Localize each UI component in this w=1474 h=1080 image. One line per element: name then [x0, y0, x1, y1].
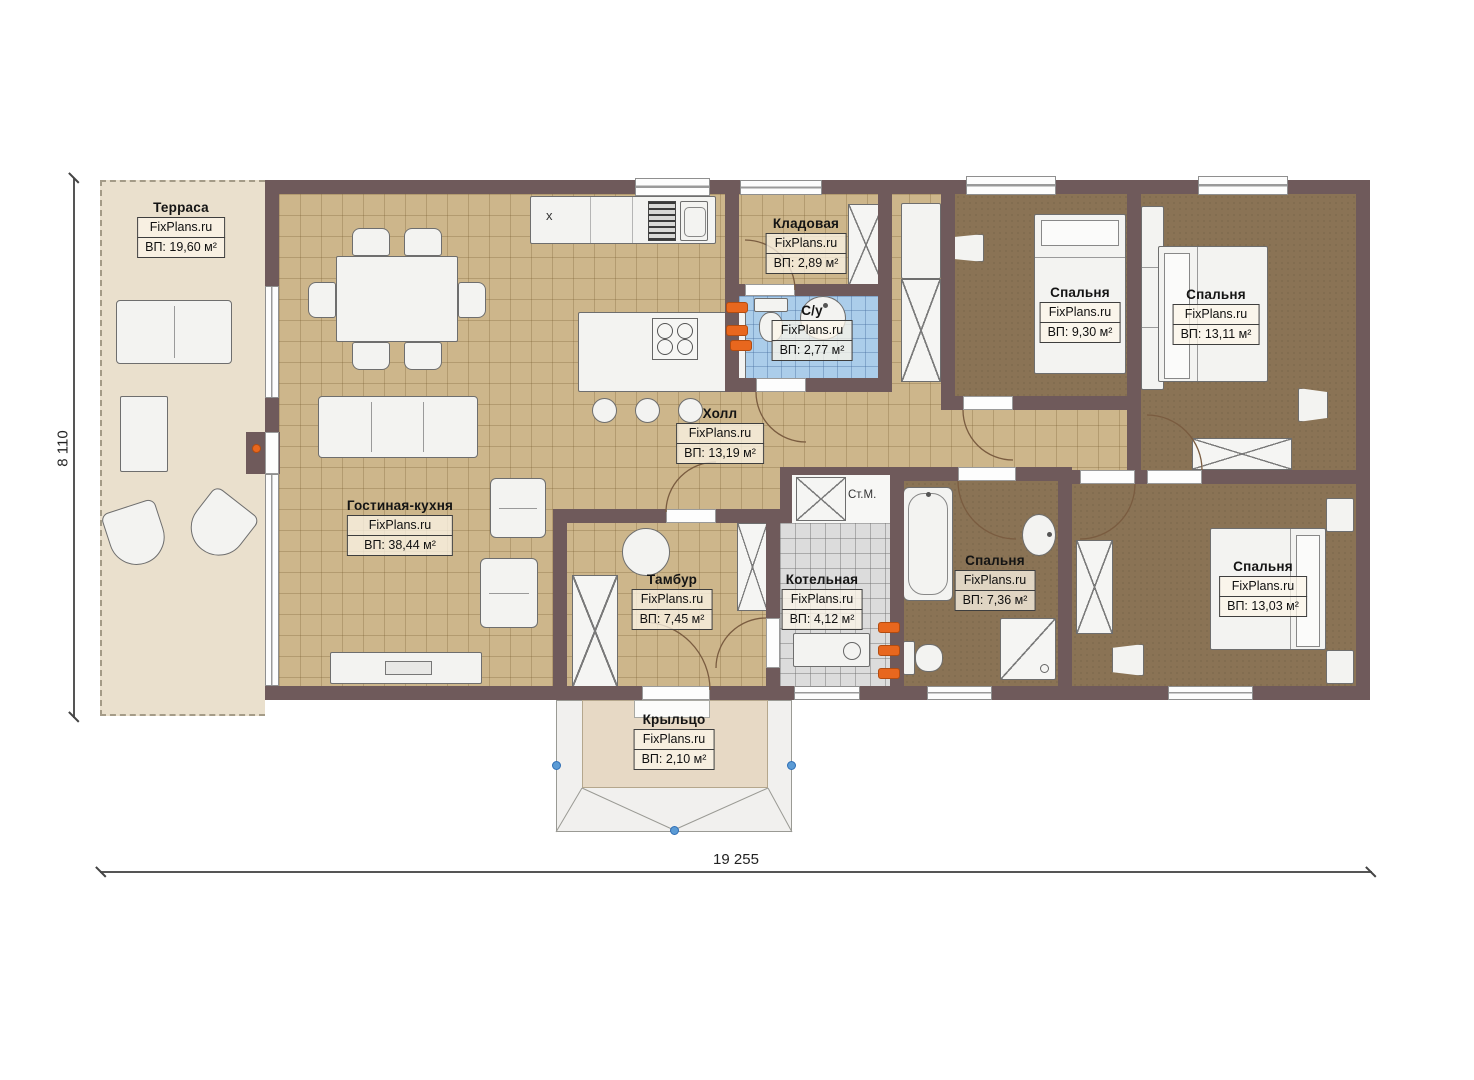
bedroom4-wardrobe: [1076, 540, 1113, 634]
kitchen-stove: [648, 201, 676, 241]
terrace-lounger: [120, 396, 168, 472]
room-watermark: FixPlans.ru: [347, 515, 453, 536]
wall-niche-top: [780, 467, 904, 475]
room-title: Спальня: [1040, 285, 1121, 300]
room-area: ВП: 7,45 м²: [632, 609, 713, 630]
bedroom3-window: [927, 686, 992, 700]
storage-door-leaf: [745, 284, 795, 296]
room-area: ВП: 2,77 м²: [772, 340, 853, 361]
bedroom1-window: [966, 176, 1056, 195]
terrace-glass-door-upper: [265, 286, 279, 398]
room-area: ВП: 19,60 м²: [137, 237, 225, 258]
label-living-kitchen: Гостиная-кухня FixPlans.ru ВП: 38,44 м²: [347, 498, 453, 556]
bed-pillow: [1041, 220, 1119, 246]
storage-window: [740, 180, 822, 195]
room-title: Терраса: [137, 200, 225, 215]
bedroom4-window: [1168, 686, 1253, 700]
bathtub: [903, 487, 953, 601]
wc-radiator-3: [730, 340, 752, 351]
boiler-door-leaf: [766, 618, 780, 668]
room-area: ВП: 4,12 м²: [782, 609, 863, 630]
room-title: Гостиная-кухня: [347, 498, 453, 513]
terrace-door-handle: [252, 444, 261, 453]
floor-plan: x Ст.М.: [0, 0, 1474, 1080]
room-title: Спальня: [955, 553, 1036, 568]
dim-height-label: 8 110: [55, 414, 72, 484]
island-cooktop: [652, 318, 698, 360]
bath-toilet-bowl: [915, 644, 943, 672]
room-area: ВП: 38,44 м²: [347, 535, 453, 556]
room-title: С/у: [772, 303, 853, 318]
label-boiler-room: Котельная FixPlans.ru ВП: 4,12 м²: [782, 572, 863, 630]
washing-machine: [796, 477, 846, 521]
label-hall: Холл FixPlans.ru ВП: 13,19 м²: [676, 406, 764, 464]
label-bedroom-2: Спальня FixPlans.ru ВП: 13,11 м²: [1173, 287, 1260, 345]
boiler-window: [794, 686, 860, 700]
washing-machine-label: Ст.М.: [848, 489, 876, 501]
bedroom4-nightstand-top: [1326, 498, 1354, 532]
dim-line-height: [73, 178, 75, 718]
dining-chair-5: [308, 282, 336, 318]
room-area: ВП: 2,89 м²: [766, 253, 847, 274]
wall-bedroom1-bedroom2: [1127, 194, 1141, 484]
room-watermark: FixPlans.ru: [137, 217, 225, 238]
room-area: ВП: 2,10 м²: [634, 749, 715, 770]
wall-bedroom3-right: [1058, 467, 1072, 700]
bedroom4-chair: [1112, 644, 1144, 676]
vestibule-closet-right: [737, 523, 768, 611]
wall-bedroom1-left: [941, 194, 955, 410]
wall-outer-left-a: [265, 180, 279, 286]
bedroom1-nightstand: [950, 234, 984, 262]
hall-closet-lower: [901, 279, 941, 382]
wall-bedroom3-top-a: [904, 467, 958, 481]
porch-handle-left: [552, 761, 561, 770]
label-bedroom-1: Спальня FixPlans.ru ВП: 9,30 м²: [1040, 285, 1121, 343]
dining-table: [336, 256, 458, 342]
wc-radiator-2: [726, 325, 748, 336]
wall-outer-left-b: [265, 398, 279, 432]
entrance-door-leaf: [642, 686, 710, 700]
room-title: Холл: [676, 406, 764, 421]
label-storage: Кладовая FixPlans.ru ВП: 2,89 м²: [766, 216, 847, 274]
boiler-equipment: [793, 633, 870, 667]
tv-screen: [385, 661, 432, 675]
room-watermark: FixPlans.ru: [766, 233, 847, 254]
porch-handle-right: [787, 761, 796, 770]
terrace-sofa: [116, 300, 232, 364]
kitchen-window: [635, 178, 710, 196]
room-area: ВП: 13,19 м²: [676, 443, 764, 464]
label-bedroom-3: Спальня FixPlans.ru ВП: 7,36 м²: [955, 553, 1036, 611]
room-watermark: FixPlans.ru: [632, 589, 713, 610]
bedroom1-door-leaf: [963, 396, 1013, 410]
label-vestibule: Тамбур FixPlans.ru ВП: 7,45 м²: [632, 572, 713, 630]
room-area: ВП: 7,36 м²: [955, 590, 1036, 611]
bedroom2-door-leaf: [1147, 470, 1202, 484]
wall-vestibule-boiler: [766, 509, 780, 700]
label-porch: Крыльцо FixPlans.ru ВП: 2,10 м²: [634, 712, 715, 770]
bedroom2-window: [1198, 176, 1288, 195]
bar-stool-2: [635, 398, 660, 423]
room-watermark: FixPlans.ru: [955, 570, 1036, 591]
room-title: Крыльцо: [634, 712, 715, 727]
room-watermark: FixPlans.ru: [634, 729, 715, 750]
vestibule-door-leaf: [666, 509, 716, 523]
room-watermark: FixPlans.ru: [1219, 576, 1307, 597]
vestibule-rug: [622, 528, 670, 576]
wall-niche-left: [780, 467, 792, 523]
living-armchair-2: [480, 558, 538, 628]
dining-chair-3: [352, 342, 390, 370]
dining-chair-6: [458, 282, 486, 318]
vestibule-closet-left: [572, 575, 618, 687]
room-area: ВП: 13,11 м²: [1173, 324, 1260, 345]
bedroom2-chair: [1298, 388, 1328, 422]
room-watermark: FixPlans.ru: [676, 423, 764, 444]
dining-chair-2: [404, 228, 442, 256]
bath-toilet-tank: [903, 641, 915, 675]
wall-outer-right: [1356, 180, 1370, 700]
bath-sink: [1022, 514, 1056, 556]
bar-stool-1: [592, 398, 617, 423]
wc-radiator-1: [726, 302, 748, 313]
room-title: Спальня: [1173, 287, 1260, 302]
bath-radiator-1: [878, 622, 900, 633]
hall-closet-upper: [901, 203, 941, 279]
counter-marker: x: [546, 208, 553, 223]
porch-handle-bottom: [670, 826, 679, 835]
shower: [1000, 618, 1056, 680]
room-area: ВП: 9,30 м²: [1040, 322, 1121, 343]
terrace-glass-door-lower: [265, 474, 279, 686]
dining-chair-4: [404, 342, 442, 370]
label-wc: С/у FixPlans.ru ВП: 2,77 м²: [772, 303, 853, 361]
bedroom4-nightstand-bottom: [1326, 650, 1354, 684]
room-title: Кладовая: [766, 216, 847, 231]
room-watermark: FixPlans.ru: [1173, 304, 1260, 325]
terrace-door-leaf: [265, 432, 279, 474]
wc-door-leaf: [756, 378, 806, 392]
bath-radiator-3: [878, 668, 900, 679]
room-watermark: FixPlans.ru: [1040, 302, 1121, 323]
bedroom2-wardrobe: [1192, 438, 1292, 470]
bedroom3-door-leaf: [958, 467, 1016, 481]
kitchen-sink: [680, 201, 708, 241]
room-title: Спальня: [1219, 559, 1307, 574]
label-bedroom-4: Спальня FixPlans.ru ВП: 13,03 м²: [1219, 559, 1307, 617]
wall-living-vestibule: [553, 509, 567, 700]
living-sofa: [318, 396, 478, 458]
bath-radiator-2: [878, 645, 900, 656]
room-title: Тамбур: [632, 572, 713, 587]
dim-line-width: [100, 871, 1372, 873]
tv-console: [330, 652, 482, 684]
room-area: ВП: 13,03 м²: [1219, 596, 1307, 617]
room-watermark: FixPlans.ru: [772, 320, 853, 341]
bedroom4-door-leaf: [1080, 470, 1135, 484]
wall-storage-right: [878, 194, 892, 392]
dim-width-label: 19 255: [686, 851, 786, 868]
wall-wc-bottom: [725, 378, 892, 392]
label-terrace: Терраса FixPlans.ru ВП: 19,60 м²: [137, 200, 225, 258]
room-watermark: FixPlans.ru: [782, 589, 863, 610]
living-armchair-1: [490, 478, 546, 538]
dining-chair-1: [352, 228, 390, 256]
room-title: Котельная: [782, 572, 863, 587]
